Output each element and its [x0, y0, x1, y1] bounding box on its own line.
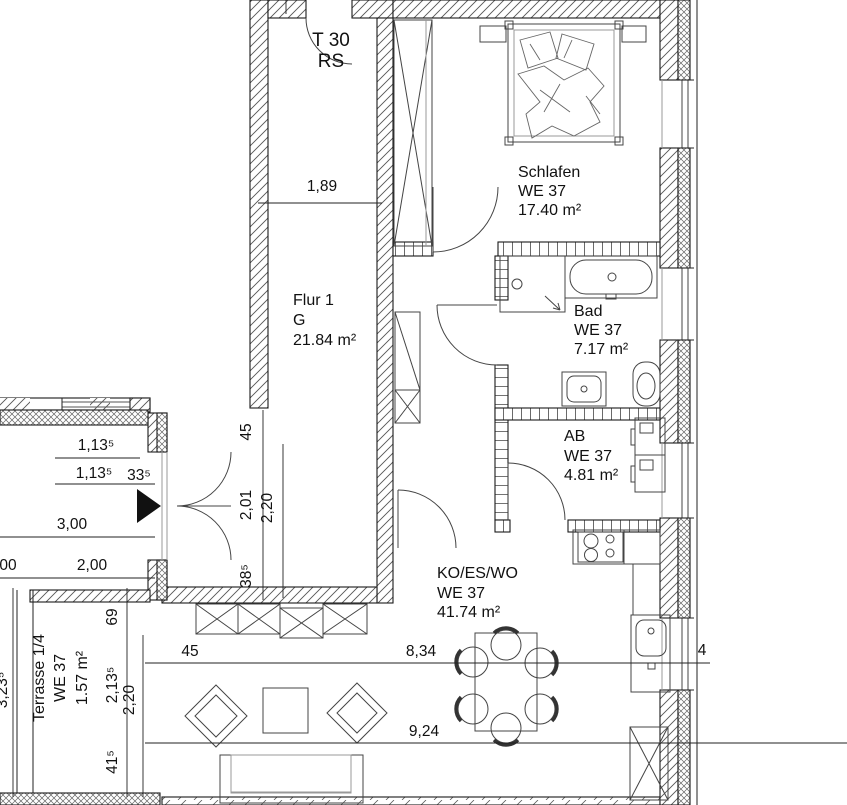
exterior-walls — [0, 0, 660, 805]
coffee-table — [263, 688, 308, 733]
svg-text:Bad: Bad — [574, 303, 602, 320]
interior-walls — [393, 242, 660, 532]
svg-text:1.57 m²: 1.57 m² — [74, 650, 91, 705]
wall-top-schlafen — [393, 0, 660, 18]
shower — [500, 256, 565, 312]
window-schlafen — [662, 80, 694, 148]
wall-ab-bottom-a — [495, 520, 510, 532]
floor-plan: T 30 RS Schlafen WE 37 17.40 m² Flur 1 G… — [0, 0, 847, 805]
svg-text:KO/ES/WO: KO/ES/WO — [437, 565, 518, 582]
wall-left-horizontal-hatch-a — [0, 398, 30, 410]
svg-text:17.40 m²: 17.40 m² — [518, 202, 582, 219]
door-label-rs: RS — [318, 51, 344, 72]
facade-bottom-strip — [162, 797, 660, 805]
dim-entry-45: 45 — [238, 423, 255, 440]
dim-834: 8,34 — [406, 643, 437, 660]
armchair — [327, 683, 387, 743]
wall-terrace-top — [30, 590, 150, 602]
wall-right-hatch-segments — [660, 0, 678, 805]
dim-terr-69: 69 — [104, 608, 121, 625]
wall-schlafen-bad-a — [393, 242, 433, 256]
storage-box — [238, 604, 280, 634]
wall-left-horizontal-hatch-b — [90, 398, 110, 410]
door-corridor — [398, 490, 456, 548]
window-kueche — [662, 618, 694, 690]
dim-200: 2,00 — [77, 557, 108, 574]
dim-wall4: 4 — [698, 642, 707, 659]
label-flur: Flur 1 G 21.84 m² — [293, 292, 357, 349]
window-ab — [662, 443, 694, 518]
chair — [525, 694, 557, 724]
storage-box — [196, 604, 238, 634]
door-bad — [437, 305, 497, 365]
svg-text:AB: AB — [564, 428, 585, 445]
storage-row — [196, 604, 367, 638]
dim-win1: 1,13⁵ — [78, 437, 115, 454]
svg-text:WE 37: WE 37 — [564, 448, 612, 465]
bathtub — [565, 256, 657, 299]
label-ab: AB WE 37 4.81 m² — [564, 428, 619, 484]
storage-box — [280, 608, 323, 638]
pillow — [520, 32, 558, 68]
entrance-arrow — [137, 489, 161, 523]
corridor-shelf — [395, 312, 420, 423]
svg-text:21.84 m²: 21.84 m² — [293, 332, 357, 349]
chair — [491, 713, 521, 745]
svg-text:WE 37: WE 37 — [518, 183, 566, 200]
label-bad: Bad WE 37 7.17 m² — [574, 303, 629, 358]
toilet — [633, 362, 660, 406]
chair — [456, 694, 488, 724]
svg-text:7.17 m²: 7.17 m² — [574, 341, 629, 358]
nightstand-right — [622, 26, 646, 42]
dim-cut00: 00 — [0, 557, 17, 574]
window-bad — [662, 268, 694, 340]
dim-924: 9,24 — [409, 723, 440, 740]
nightstand-left — [480, 26, 506, 42]
door-ab — [508, 463, 565, 520]
chair — [456, 647, 488, 677]
bathroom-sink — [562, 372, 606, 406]
dim-terr-2135: 2,13⁵ — [104, 667, 121, 704]
dim-300: 3,00 — [57, 516, 88, 533]
wall-flur-right — [377, 18, 393, 603]
armchair — [185, 685, 247, 747]
svg-text:Flur 1: Flur 1 — [293, 292, 334, 309]
label-wohnen: KO/ES/WO WE 37 41.74 m² — [437, 565, 518, 621]
wall-left-insulation-strip — [0, 410, 148, 425]
kitchen — [573, 530, 670, 800]
door-label-t30: T 30 — [312, 30, 350, 51]
wall-top-b — [352, 0, 393, 18]
wall-flur-bottom — [162, 587, 377, 603]
svg-text:WE 37: WE 37 — [437, 585, 485, 602]
dim-win3: 33⁵ — [127, 467, 151, 484]
svg-text:G: G — [293, 312, 305, 329]
dim-terr-220: 2,20 — [121, 685, 138, 716]
kitchen-sink — [631, 615, 670, 692]
wall-left-vertical — [250, 0, 268, 408]
dining-table — [475, 633, 537, 731]
stove — [578, 532, 623, 562]
storage-box — [323, 604, 367, 634]
door-schlafen — [433, 187, 498, 252]
door-entrance-double — [150, 452, 231, 560]
svg-text:41.74 m²: 41.74 m² — [437, 604, 501, 621]
dim-entry-201: 2,01 — [238, 490, 255, 520]
dim-win2: 1,13⁵ — [76, 465, 113, 482]
wall-schlafen-bad-b — [498, 242, 660, 256]
wall-top-a — [268, 0, 306, 18]
floor-plan-drawing: T 30 RS Schlafen WE 37 17.40 m² Flur 1 G… — [0, 0, 847, 805]
dim-flur-width: 1,89 — [307, 178, 337, 195]
svg-text:WE 37: WE 37 — [574, 322, 622, 339]
label-terrasse: Terrasse 1/4 WE 37 1.57 m² — [31, 634, 91, 722]
svg-text:Terrasse 1/4: Terrasse 1/4 — [31, 634, 48, 722]
dim-terr-415: 41⁵ — [104, 750, 121, 774]
pillow — [556, 34, 594, 70]
svg-text:4.81 m²: 4.81 m² — [564, 467, 619, 484]
svg-text:Schlafen: Schlafen — [518, 164, 580, 181]
wall-corridor-bad-a — [495, 256, 508, 300]
svg-text:WE 37: WE 37 — [52, 654, 69, 702]
wall-entry-bottom-insulation — [157, 560, 167, 600]
wall-terrace-bottom — [0, 793, 160, 805]
dim-entry-220: 2,20 — [259, 493, 276, 524]
label-schlafen: Schlafen WE 37 17.40 m² — [518, 164, 582, 219]
dim-wall45: 45 — [181, 643, 198, 660]
dining-set — [456, 628, 557, 745]
duvet-scribble-lines — [530, 40, 600, 114]
dim-terr-total: 3,23⁵ — [0, 672, 11, 709]
dim-entry-385: 38⁵ — [238, 564, 255, 588]
bed — [505, 21, 623, 145]
wall-corridor-bad-b — [495, 365, 508, 520]
wardrobe-schlafen — [394, 20, 432, 246]
wall-right-column — [660, 0, 697, 805]
wall-entry-top-insulation — [157, 413, 167, 452]
sofa — [220, 755, 363, 803]
